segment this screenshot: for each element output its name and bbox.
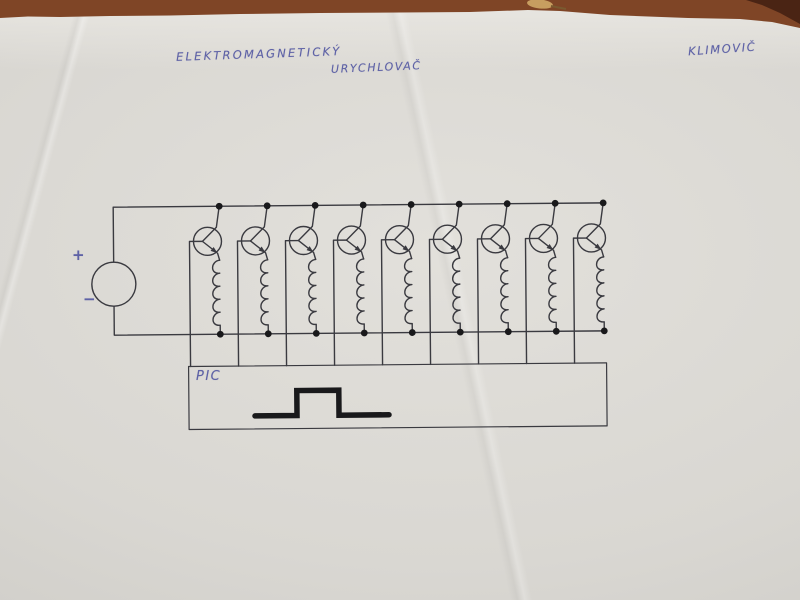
junction-dot xyxy=(264,202,271,209)
source-minus-label: − xyxy=(83,290,96,308)
junction-dot xyxy=(409,329,416,336)
junction-dot xyxy=(601,327,608,334)
junction-dot xyxy=(600,199,607,206)
photo-of-schematic: ELEKTROMAGNETICKÝ URYCHLOVAČ KLIMOVIČ + … xyxy=(0,0,800,600)
junction-dot xyxy=(456,201,463,208)
junction-dot xyxy=(217,331,224,338)
transistor-coil-stage xyxy=(429,201,464,365)
junction-dot xyxy=(360,202,367,209)
transistor-coil-stage xyxy=(477,200,512,364)
transistor-coil-stage xyxy=(333,202,368,366)
transistor-coil-stage xyxy=(525,200,560,364)
transistor-coil-stage xyxy=(381,201,416,365)
junction-dot xyxy=(361,330,368,337)
transistor-coil-stage xyxy=(573,199,608,363)
junction-dot xyxy=(313,330,320,337)
transistor-coil-stage xyxy=(237,202,272,366)
junction-dot xyxy=(312,202,319,209)
junction-dot xyxy=(505,328,512,335)
wood-table-edge xyxy=(0,0,800,40)
junction-dot xyxy=(265,330,272,337)
transistor-coil-stage xyxy=(189,203,224,367)
pic-controller-label: PIC xyxy=(196,369,221,384)
junction-dot xyxy=(408,201,415,208)
junction-dot xyxy=(457,329,464,336)
wood-surface xyxy=(0,0,800,28)
transistor-coil-stage xyxy=(285,202,320,366)
junction-dot xyxy=(216,203,223,210)
junction-dot xyxy=(553,328,560,335)
dc-source-symbol xyxy=(92,262,136,306)
junction-dot xyxy=(504,200,511,207)
pic-controller-box xyxy=(189,363,608,430)
schematic-drawing xyxy=(0,0,800,600)
pulse-waveform xyxy=(255,390,389,416)
junction-dot xyxy=(552,200,559,207)
bottom-supply-bus xyxy=(114,302,604,335)
source-plus-label: + xyxy=(72,246,85,264)
